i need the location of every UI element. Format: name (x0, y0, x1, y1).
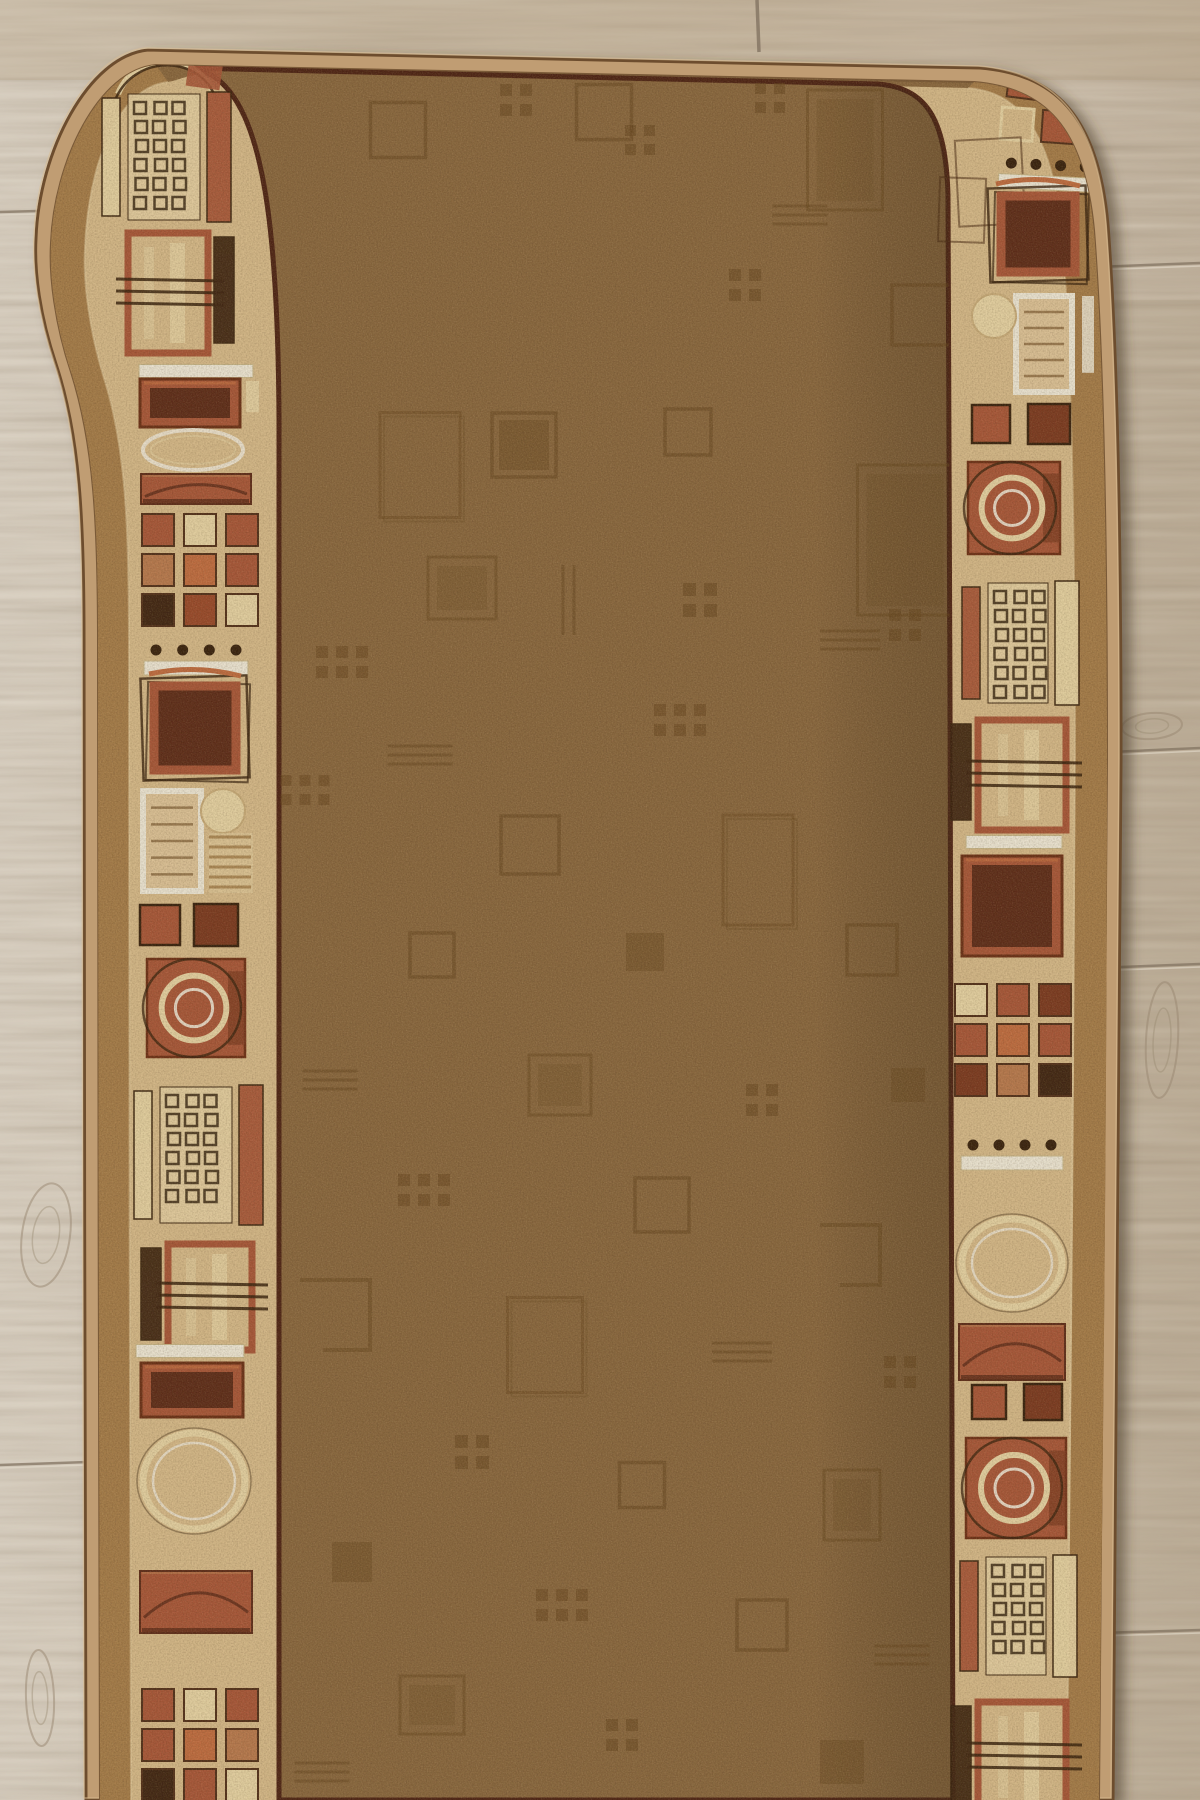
carpet-noise-light (0, 0, 1200, 1800)
rug-scene-svg (0, 0, 1200, 1800)
rug-product-photo (0, 0, 1200, 1800)
runner-rug (0, 0, 1200, 1800)
plank-seam-vertical (757, 0, 759, 52)
